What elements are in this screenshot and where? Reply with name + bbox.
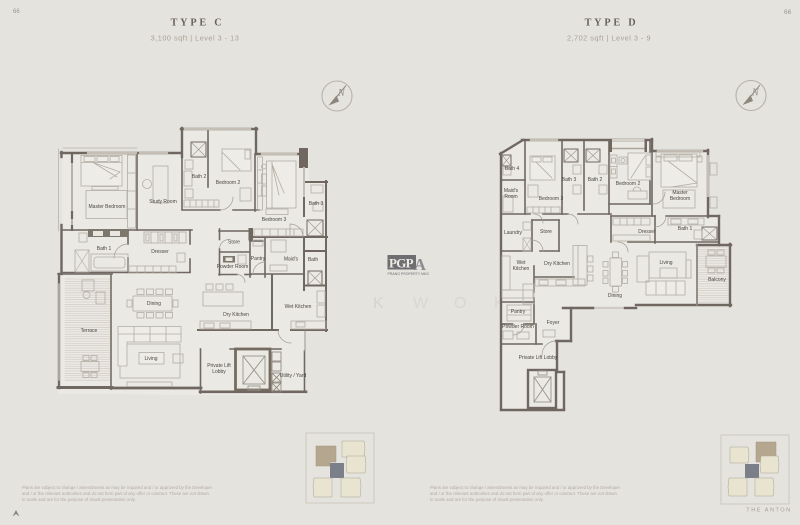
svg-text:Bath 4: Bath 4: [505, 166, 520, 172]
svg-text:Dry Kitchen: Dry Kitchen: [544, 261, 570, 267]
svg-text:Bath 3: Bath 3: [562, 177, 577, 183]
svg-text:Bath: Bath: [308, 257, 319, 263]
svg-text:Room: Room: [504, 194, 517, 200]
svg-text:Dry Kitchen: Dry Kitchen: [223, 312, 249, 318]
svg-text:Living: Living: [659, 260, 672, 266]
svg-text:Master Bedroom: Master Bedroom: [89, 204, 126, 210]
svg-text:Dining: Dining: [608, 293, 622, 299]
svg-text:Store: Store: [540, 229, 552, 235]
svg-text:Store: Store: [228, 240, 240, 246]
svg-text:THE ANTON: THE ANTON: [746, 508, 791, 514]
svg-text:Bath 1: Bath 1: [678, 226, 693, 232]
svg-text:Plans are subject to change /: Plans are subject to change / amendments…: [22, 485, 213, 490]
svg-text:TYPE C: TYPE C: [171, 18, 225, 29]
svg-text:Pantry: Pantry: [511, 309, 526, 315]
svg-text:66: 66: [784, 9, 792, 16]
svg-text:Dining: Dining: [147, 301, 161, 307]
svg-text:Powder Room: Powder Room: [217, 264, 249, 270]
svg-text:O: O: [454, 295, 466, 312]
svg-text:Bedroom 2: Bedroom 2: [216, 180, 241, 186]
svg-text:Dresser: Dresser: [151, 249, 169, 255]
svg-text:W: W: [413, 295, 429, 312]
svg-text:Wet Kitchen: Wet Kitchen: [285, 304, 312, 310]
svg-text:Laundry: Laundry: [504, 230, 523, 236]
svg-text:N: N: [751, 88, 760, 99]
svg-text:Terrace: Terrace: [81, 328, 98, 334]
svg-text:Study Room: Study Room: [149, 199, 177, 205]
svg-text:Dresser: Dresser: [638, 229, 656, 235]
svg-text:Bath 2: Bath 2: [192, 174, 207, 180]
svg-text:Bedroom 2: Bedroom 2: [616, 181, 641, 187]
svg-text:and / or the relevant authorit: and / or the relevant authorities and do…: [430, 491, 618, 496]
svg-text:66: 66: [13, 9, 20, 15]
svg-text:to scale and are for the purpo: to scale and are for the purpose of visu…: [430, 497, 544, 502]
svg-text:PRANG PROPERTY MKG: PRANG PROPERTY MKG: [388, 272, 430, 276]
svg-text:K: K: [373, 295, 384, 312]
svg-text:TYPE D: TYPE D: [585, 18, 639, 29]
svg-text:Maid's: Maid's: [284, 257, 299, 263]
svg-text:Pantry: Pantry: [251, 256, 266, 262]
svg-text:and / or the relevant authorit: and / or the relevant authorities and do…: [22, 491, 210, 496]
svg-text:Bedroom 3: Bedroom 3: [539, 196, 564, 202]
svg-text:Utility / Yard: Utility / Yard: [280, 373, 307, 379]
svg-text:Bedroom: Bedroom: [670, 196, 690, 202]
svg-text:Plans are subject to change /: Plans are subject to change / amendments…: [430, 485, 621, 490]
svg-text:Living: Living: [144, 356, 157, 362]
svg-text:Powder Room: Powder Room: [502, 324, 534, 330]
svg-text:Bath 3: Bath 3: [309, 201, 324, 207]
svg-text:Bath 1: Bath 1: [97, 246, 112, 252]
svg-text:to scale and are for the purpo: to scale and are for the purpose of visu…: [22, 497, 136, 502]
svg-text:Foyer: Foyer: [547, 320, 560, 326]
svg-text:Private Lift Lobby: Private Lift Lobby: [519, 355, 558, 361]
svg-text:2,702 sqft | Level 3 - 9: 2,702 sqft | Level 3 - 9: [567, 34, 651, 43]
svg-text:Kitchen: Kitchen: [513, 266, 530, 272]
svg-text:N: N: [337, 88, 346, 99]
svg-text:Bath 2: Bath 2: [588, 177, 603, 183]
svg-text:Bedroom 3: Bedroom 3: [262, 217, 287, 223]
svg-text:PGP: PGP: [389, 256, 414, 271]
svg-text:Lobby: Lobby: [212, 369, 226, 375]
svg-text:Balcony: Balcony: [708, 277, 726, 283]
svg-text:3,100 sqft | Level 3 - 13: 3,100 sqft | Level 3 - 13: [151, 34, 240, 43]
